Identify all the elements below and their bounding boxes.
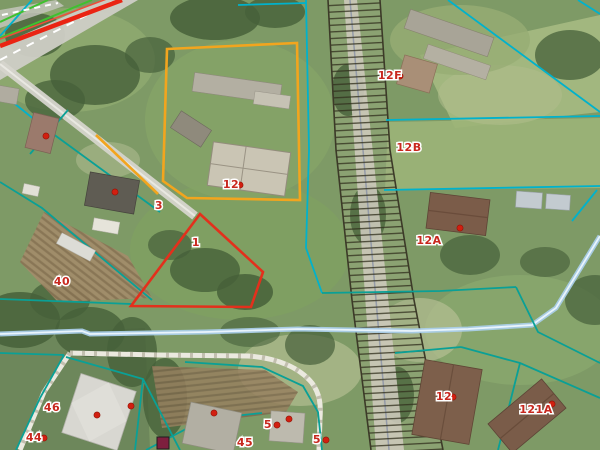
map-canvas[interactable]: 1212F12B12A13404644545512121A [0,0,600,450]
parcel-label-12: 12 [223,178,239,191]
parcel-label-121A: 121A [519,403,552,416]
parcel-label-12F: 12F [378,69,402,82]
parcel-label-5: 5 [313,433,321,446]
address-point-marker [323,437,329,443]
parcel-label-40: 40 [54,275,70,288]
parcel-label-46: 46 [44,401,60,414]
parcel-label-3: 3 [155,199,163,212]
address-point-marker [112,189,118,195]
address-point-marker [211,410,217,416]
address-point-marker [286,416,292,422]
address-point-marker [128,403,134,409]
parcel-label-45: 45 [237,436,253,449]
parcel-label-5: 5 [264,418,272,431]
parcel-label-12A: 12A [416,234,441,247]
special-square-marker [157,437,169,449]
address-point-marker [457,225,463,231]
special-markers [157,437,169,449]
parcel-label-12: 12 [436,390,452,403]
parcel-label-12B: 12B [396,141,421,154]
address-point-marker [274,422,280,428]
address-point-marker [43,133,49,139]
address-point-marker [94,412,100,418]
parcel-label-1: 1 [192,236,200,249]
parcel-label-44: 44 [26,431,42,444]
map-graphics: 1212F12B12A13404644545512121A [0,0,600,450]
